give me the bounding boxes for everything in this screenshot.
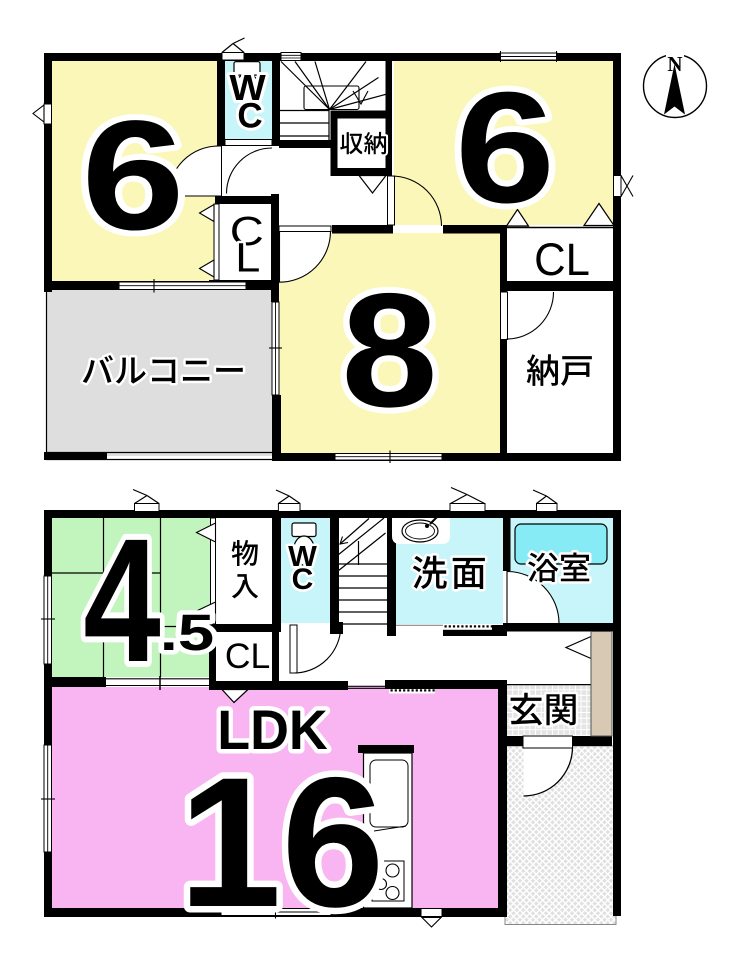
svg-text:4: 4 [83,501,160,699]
svg-text:CL: CL [225,636,270,676]
svg-text:N: N [667,52,682,76]
svg-text:6: 6 [455,59,555,235]
svg-text:C: C [237,97,262,136]
svg-text:.5: .5 [160,605,214,662]
svg-text:16: 16 [179,740,385,946]
svg-text:CL: CL [534,235,590,285]
svg-text:C: C [292,563,314,596]
svg-text:L: L [235,235,260,281]
svg-text:8: 8 [341,259,437,441]
svg-text:6: 6 [81,89,184,263]
